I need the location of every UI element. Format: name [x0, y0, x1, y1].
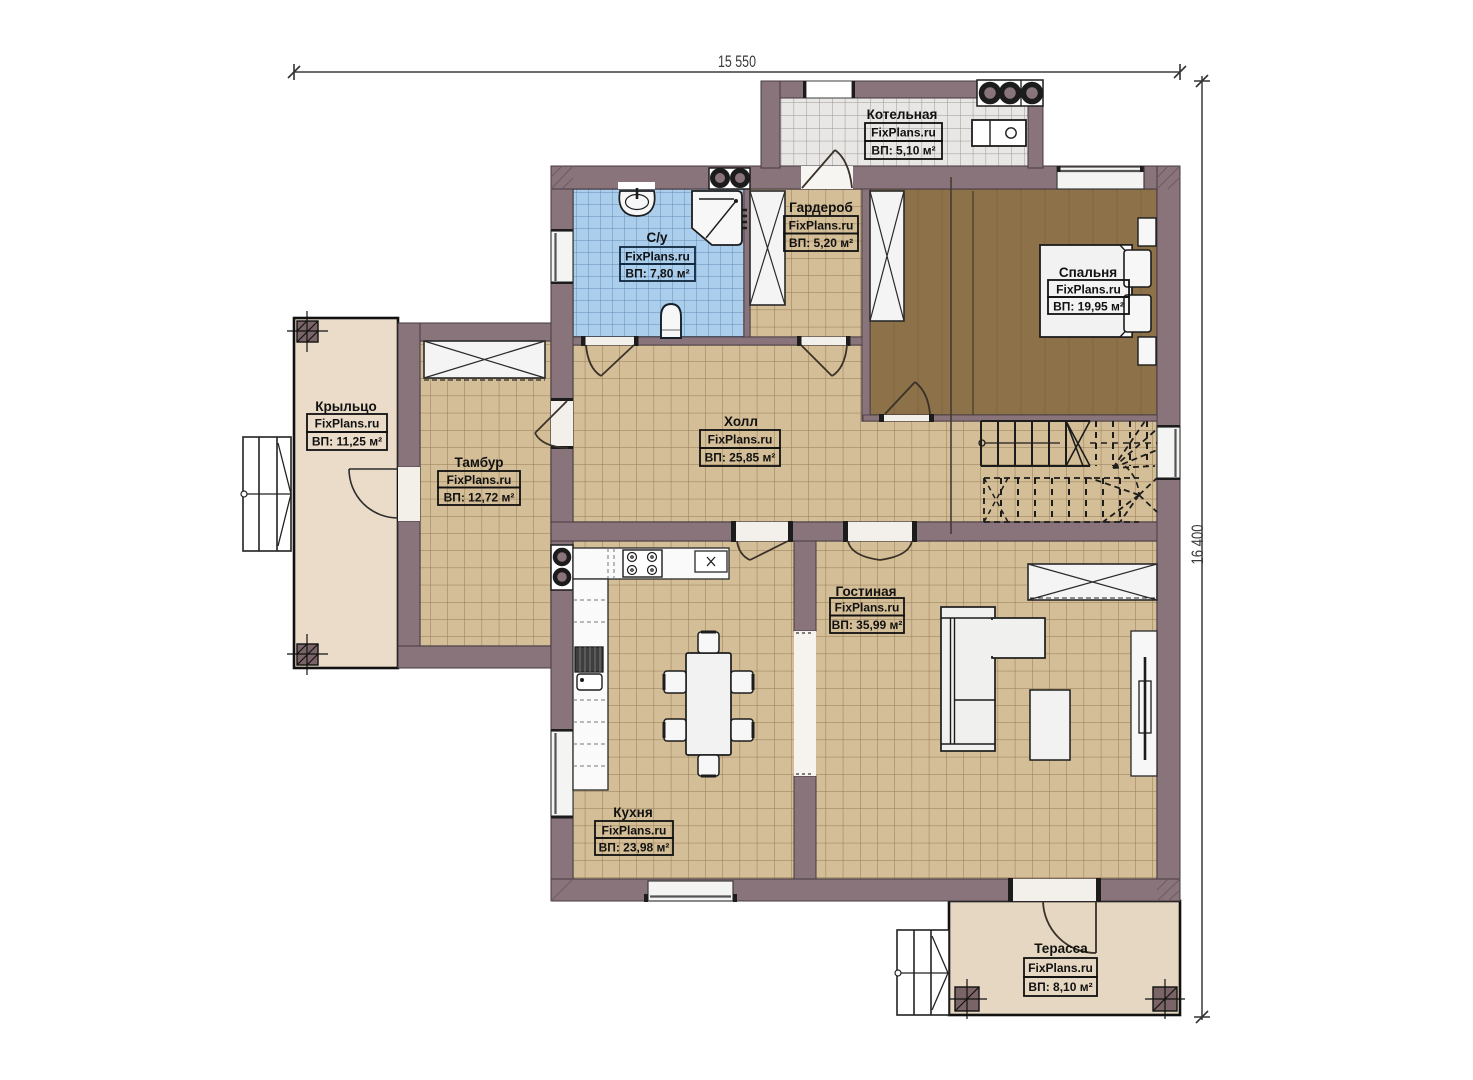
svg-text:ВП: 12,72 м²: ВП: 12,72 м²	[444, 491, 515, 505]
svg-text:Спальня: Спальня	[1059, 265, 1117, 280]
svg-text:Тамбур: Тамбур	[455, 455, 504, 470]
svg-text:Холл: Холл	[724, 414, 758, 429]
svg-text:С/у: С/у	[646, 230, 668, 245]
svg-text:FixPlans.ru: FixPlans.ru	[835, 601, 900, 615]
svg-text:16 400: 16 400	[1188, 525, 1207, 565]
svg-text:ВП: 25,85 м²: ВП: 25,85 м²	[705, 451, 776, 465]
svg-text:ВП: 8,10 м²: ВП: 8,10 м²	[1028, 980, 1092, 994]
svg-text:FixPlans.ru: FixPlans.ru	[1056, 283, 1121, 297]
svg-text:FixPlans.ru: FixPlans.ru	[447, 473, 512, 487]
svg-text:FixPlans.ru: FixPlans.ru	[625, 250, 690, 264]
svg-text:FixPlans.ru: FixPlans.ru	[871, 126, 936, 140]
svg-text:15 550: 15 550	[718, 52, 756, 71]
svg-text:Гардероб: Гардероб	[789, 200, 853, 215]
svg-text:FixPlans.ru: FixPlans.ru	[1028, 961, 1093, 975]
svg-text:ВП: 7,80 м²: ВП: 7,80 м²	[625, 267, 689, 281]
svg-text:ВП: 23,98 м²: ВП: 23,98 м²	[599, 841, 670, 855]
svg-text:Кухня: Кухня	[613, 805, 652, 820]
svg-text:ВП: 35,99 м²: ВП: 35,99 м²	[832, 618, 903, 632]
svg-text:Гостиная: Гостиная	[835, 584, 896, 599]
svg-text:FixPlans.ru: FixPlans.ru	[602, 824, 667, 838]
svg-text:FixPlans.ru: FixPlans.ru	[315, 417, 380, 431]
svg-text:ВП: 11,25 м²: ВП: 11,25 м²	[312, 435, 382, 449]
svg-text:Котельная: Котельная	[867, 107, 938, 122]
svg-text:ВП: 5,10 м²: ВП: 5,10 м²	[871, 144, 935, 158]
svg-text:ВП: 19,95 м²: ВП: 19,95 м²	[1053, 300, 1124, 314]
svg-text:FixPlans.ru: FixPlans.ru	[789, 219, 854, 233]
svg-text:ВП: 5,20 м²: ВП: 5,20 м²	[789, 236, 853, 250]
svg-text:FixPlans.ru: FixPlans.ru	[708, 433, 773, 447]
svg-text:Крыльцо: Крыльцо	[315, 399, 376, 414]
svg-text:Терасса: Терасса	[1034, 941, 1088, 956]
